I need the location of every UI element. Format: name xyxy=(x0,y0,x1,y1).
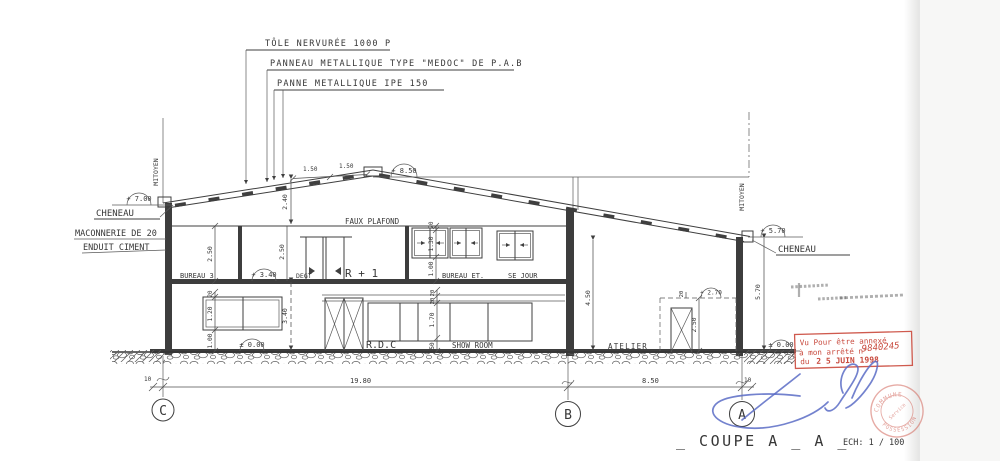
bleed-through-marks xyxy=(791,283,903,299)
level-atelier-top: + 2.70 xyxy=(700,290,722,297)
mitoyen-right-label: MITOYEN xyxy=(738,183,746,210)
room-bureau-et: BUREAU ET. xyxy=(442,272,484,280)
r1-openings xyxy=(306,228,533,280)
level-ground-right: ± 0.00 xyxy=(768,341,793,349)
dim-sr-window: 1.70 xyxy=(429,312,436,327)
approval-stamp: Vu Pour être annexé à mon arrêté n° 9840… xyxy=(795,331,913,368)
purlins-left xyxy=(175,174,369,206)
dim-r1-lintel: 20 xyxy=(429,221,435,228)
mitoyen-left-label: MITOYEN xyxy=(152,158,160,185)
grid-letter-c: C xyxy=(159,404,167,419)
faux-plafond-label: FAUX PLAFOND xyxy=(345,217,400,226)
coupe-aa-drawing: TÔLE NERVURÉE 1000 P PANNEAU METALLIQUE … xyxy=(0,0,1000,461)
maconnerie-label: MACONNERIE DE 20 xyxy=(75,229,157,239)
right-notes: CHENEAU xyxy=(752,240,850,255)
bottom-dimensions: 10 19.80 8.50 10 C B A xyxy=(144,356,756,427)
dim-sr-band-a: 20 xyxy=(430,290,436,297)
drawing-scale: ECH: 1 / 100 xyxy=(843,438,904,448)
room-degt: DEGT xyxy=(296,272,312,280)
dim-rdc-sill: 1.00 xyxy=(207,333,214,348)
title-block: _ COUPE A _ A _ ECH: 1 / 100 xyxy=(676,432,904,450)
dim-span-ba: 8.50 xyxy=(642,377,659,385)
cheneau-left-label: CHENEAU xyxy=(96,209,134,219)
level-eave-right: + 5.70 xyxy=(760,227,785,235)
grid-letter-b: B xyxy=(564,408,572,423)
dim-rdc-lintel: 20 xyxy=(208,290,214,297)
dim-span-cb: 19.80 xyxy=(350,377,371,385)
left-notes: CHENEAU MACONNERIE DE 20 ENDUIT CIMENT xyxy=(74,205,173,253)
dim-offset-right: 10 xyxy=(744,377,752,384)
dim-sr-sill: 50 xyxy=(429,342,436,350)
scanned-section-drawing: TÔLE NERVURÉE 1000 P PANNEAU METALLIQUE … xyxy=(0,0,1000,461)
room-rdc: R.D.C xyxy=(366,340,396,351)
room-bureau3: BUREAU 3 xyxy=(180,272,214,280)
wall-right xyxy=(736,237,743,356)
material-annotations: TÔLE NERVURÉE 1000 P PANNEAU METALLIQUE … xyxy=(246,37,523,184)
dim-wall-right-height: 5.70 xyxy=(754,284,762,300)
roof: 1.50 1.50 xyxy=(158,163,753,242)
dim-r1-window: 1.30 xyxy=(428,236,435,251)
level-ridge: + 8.50 xyxy=(391,167,416,175)
level-eave-left: + 7.00 xyxy=(126,195,151,203)
dim-r1-height-b: 2.50 xyxy=(278,244,286,260)
room-showroom: SHOW ROOM xyxy=(452,341,493,350)
level-floor1: + 3.40 xyxy=(251,271,276,279)
boundary-lines: MITOYEN MITOYEN xyxy=(152,112,749,211)
terrain xyxy=(110,350,796,364)
level-ground-left: ± 0.00 xyxy=(239,341,264,349)
annotation-tole: TÔLE NERVURÉE 1000 P xyxy=(265,37,391,49)
dim-roof-rise: 2.40 xyxy=(281,194,289,210)
room-r1: R + 1 xyxy=(345,267,378,280)
dim-rdc-window: 1.20 xyxy=(207,306,214,321)
dim-rdc-height: 3.40 xyxy=(281,308,289,324)
room-atelier: ATELIER xyxy=(608,342,648,351)
atelier-details xyxy=(660,298,736,352)
dim-offset-left: 10 xyxy=(144,376,152,383)
stamp-line3: du xyxy=(800,357,809,366)
drawing-title: _ COUPE A _ A _ xyxy=(676,432,849,450)
paper-margin xyxy=(920,0,1000,461)
room-sejour: SE JOUR xyxy=(508,272,538,280)
dim-sr-band-b: 20 xyxy=(430,298,436,305)
dim-ridge-bay2: 1.50 xyxy=(339,163,354,170)
dim-door-lintel: 20 xyxy=(679,291,685,298)
purlins-right xyxy=(379,175,740,240)
dim-ridge-bay1: 1.50 xyxy=(303,166,318,173)
dim-door-height: 2.50 xyxy=(691,317,698,332)
degt-door-2 xyxy=(326,237,344,280)
cheneau-right-label: CHENEAU xyxy=(778,245,816,255)
dim-r1-height-a: 2.50 xyxy=(206,246,214,262)
partition-1 xyxy=(238,226,242,280)
annotation-panne: PANNE METALLIQUE IPE 150 xyxy=(277,79,429,89)
stamp-date: 2 5 JUIN 1998 xyxy=(816,355,879,366)
dim-r1-sill: 1.00 xyxy=(428,261,435,276)
annotation-panneau: PANNEAU METALLIQUE TYPE "MEDOC" DE P.A.B xyxy=(270,59,523,69)
partition-2 xyxy=(405,226,409,280)
dim-atelier-height: 4.50 xyxy=(584,290,592,306)
